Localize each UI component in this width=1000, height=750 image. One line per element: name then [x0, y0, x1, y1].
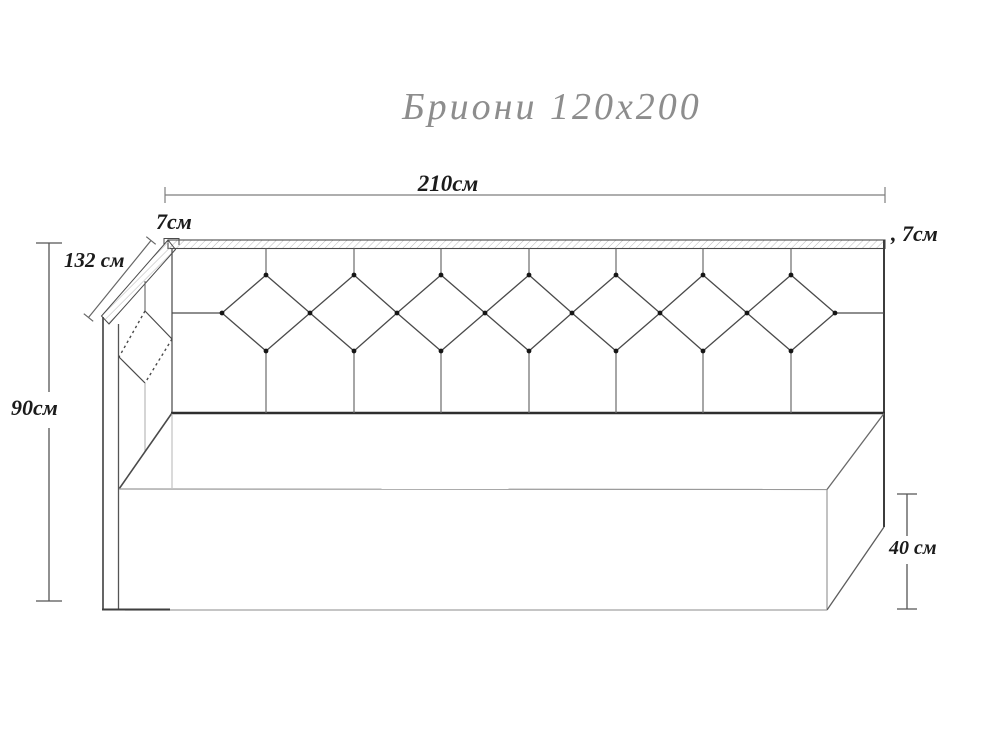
dimension-label-rail-left: 7см [156, 211, 192, 233]
dimension-label-base-height: 40 см [889, 538, 937, 558]
dimension-line-total-height [36, 243, 62, 601]
headboard-outline [171, 240, 885, 527]
drawing-title: Бриони 120x200 [352, 88, 752, 126]
dimension-label-total-width: 210см [398, 172, 498, 195]
dimension-label-total-height: 90см [11, 397, 58, 419]
drawing-canvas: Бриони 120x200 210см 7см , 7см 132 см 90… [0, 0, 1000, 750]
tufting-buttons [220, 273, 838, 354]
base-box [102, 490, 884, 611]
dimension-label-side-depth: 132 см [64, 250, 124, 271]
dimension-line-total-width [165, 187, 885, 203]
dimension-label-rail-right: , 7см [891, 223, 938, 245]
side-panel [103, 281, 172, 610]
seat-platform [119, 413, 884, 490]
headboard-top-rail [168, 240, 885, 249]
headboard-tufting-diamonds [172, 275, 884, 351]
